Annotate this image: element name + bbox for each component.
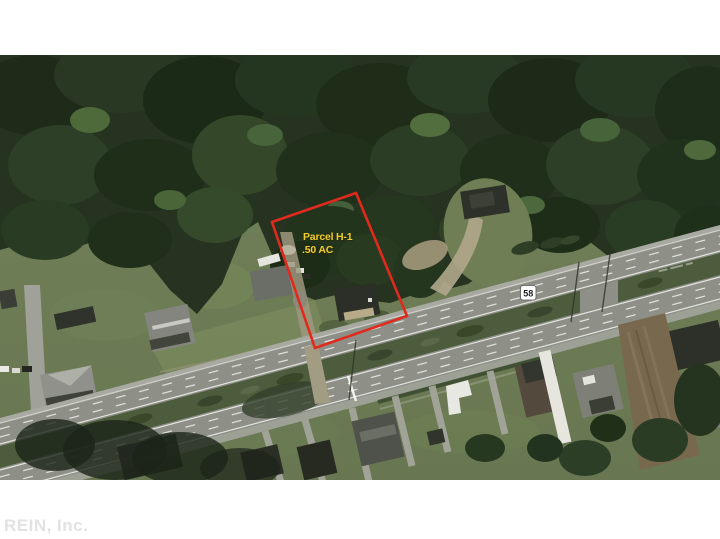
aerial-photo: Parcel H-1 Parcel H-1 .50 AC .50 AC 58 R… [0, 0, 720, 539]
parcel-label-line1: Parcel H-1 [303, 231, 353, 243]
satellite-photo: Parcel H-1 Parcel H-1 .50 AC .50 AC 58 [0, 37, 720, 502]
watermark: REIN, Inc. [4, 516, 88, 535]
parcel-label-line2: .50 AC [302, 244, 334, 256]
route-shield-icon: 58 [521, 286, 537, 301]
shed-roof [0, 289, 17, 310]
route-shield-number: 58 [523, 289, 533, 299]
listing-photo-page: Parcel H-1 Parcel H-1 .50 AC .50 AC 58 R… [0, 0, 720, 539]
